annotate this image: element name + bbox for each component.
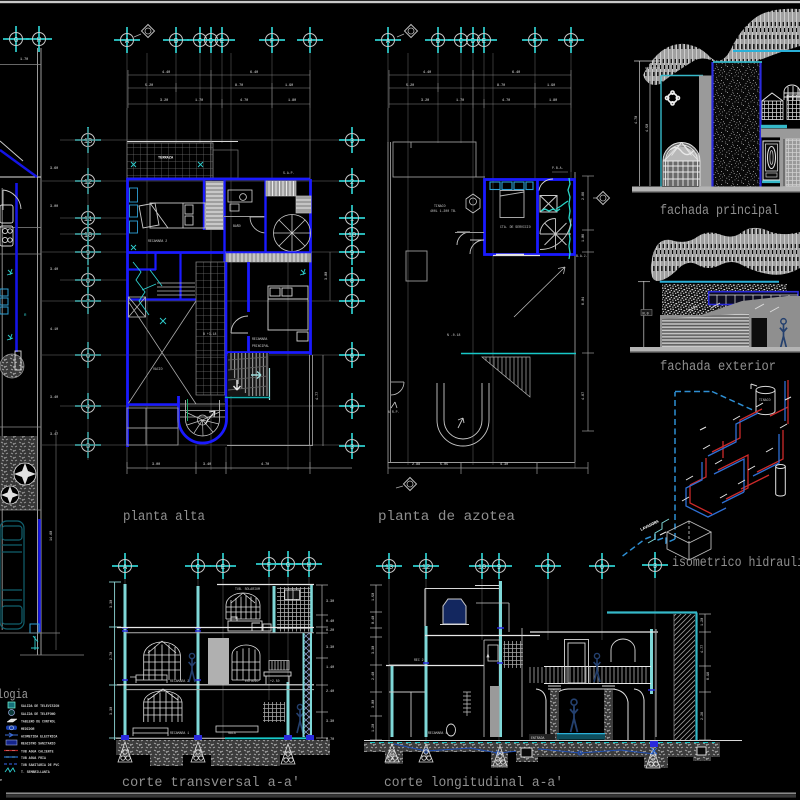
svg-text:10: 10 bbox=[478, 564, 486, 572]
svg-text:2.40: 2.40 bbox=[326, 690, 334, 694]
svg-text:4.70: 4.70 bbox=[502, 99, 510, 103]
svg-text:8.70: 8.70 bbox=[235, 84, 243, 88]
svg-text:1.80: 1.80 bbox=[549, 99, 557, 103]
svg-text:3.60: 3.60 bbox=[50, 167, 58, 171]
svg-text:1.70: 1.70 bbox=[195, 99, 203, 103]
svg-text:E: E bbox=[221, 564, 225, 572]
svg-text:3.00: 3.00 bbox=[325, 272, 329, 280]
svg-text:3.20: 3.20 bbox=[160, 99, 168, 103]
svg-text:fachada exterior: fachada exterior bbox=[660, 360, 776, 375]
svg-text:RECAMARA 1: RECAMARA 1 bbox=[170, 731, 189, 735]
svg-text:2.88: 2.88 bbox=[412, 463, 420, 467]
svg-text:8.04: 8.04 bbox=[582, 297, 586, 305]
svg-text:planta alta: planta alta bbox=[123, 510, 205, 525]
svg-text:9: 9 bbox=[350, 250, 354, 258]
svg-text:F: F bbox=[533, 38, 537, 46]
svg-text:5.20: 5.20 bbox=[145, 84, 153, 88]
svg-text:3.00: 3.00 bbox=[50, 205, 58, 209]
svg-text:SALIDA DE TELEFONO: SALIDA DE TELEFONO bbox=[21, 712, 56, 716]
svg-text:4.50: 4.50 bbox=[646, 124, 650, 132]
svg-text:E: E bbox=[220, 38, 224, 46]
svg-text:6: 6 bbox=[350, 353, 354, 361]
svg-text:TUB AGUA FRIA: TUB AGUA FRIA bbox=[21, 756, 46, 760]
svg-text:H: H bbox=[37, 37, 41, 45]
svg-text:4.70: 4.70 bbox=[261, 463, 269, 467]
svg-text:TINACO: TINACO bbox=[434, 204, 446, 208]
svg-text:RECAMARA: RECAMARA bbox=[252, 337, 267, 341]
svg-text:E: E bbox=[482, 38, 486, 46]
svg-text:4.77: 4.77 bbox=[701, 645, 705, 653]
svg-text:8: 8 bbox=[350, 278, 354, 286]
svg-text:RECAMARA 2: RECAMARA 2 bbox=[170, 679, 189, 683]
svg-text:3.30: 3.30 bbox=[110, 600, 114, 608]
svg-text:4.40: 4.40 bbox=[423, 71, 431, 75]
svg-text:5.20: 5.20 bbox=[406, 84, 414, 88]
svg-text:1.40: 1.40 bbox=[326, 666, 334, 670]
svg-text:H: H bbox=[569, 38, 573, 46]
svg-text:3.30: 3.30 bbox=[326, 646, 334, 650]
svg-text:TUB SANITARIA DE PVC: TUB SANITARIA DE PVC bbox=[21, 763, 59, 767]
svg-text:2.70: 2.70 bbox=[110, 652, 114, 660]
svg-text:3.40: 3.40 bbox=[203, 463, 211, 467]
svg-text:MEDIDOR: MEDIDOR bbox=[21, 727, 34, 731]
svg-text:3.47: 3.47 bbox=[50, 433, 58, 437]
svg-text:9: 9 bbox=[497, 564, 501, 572]
svg-text:3: 3 bbox=[653, 563, 657, 571]
svg-text:3.30: 3.30 bbox=[110, 707, 114, 715]
svg-text:3.30: 3.30 bbox=[326, 720, 334, 724]
svg-text:3.20: 3.20 bbox=[421, 99, 429, 103]
svg-text:8.98: 8.98 bbox=[707, 672, 711, 680]
svg-text:4.40: 4.40 bbox=[162, 71, 170, 75]
svg-text:N -0.18: N -0.18 bbox=[447, 333, 460, 337]
svg-text:ESTUDIO: ESTUDIO bbox=[245, 679, 258, 683]
svg-text:TINACO: TINACO bbox=[759, 398, 771, 402]
svg-text:TUB AGUA CALIENTE: TUB AGUA CALIENTE bbox=[21, 749, 54, 753]
svg-text:2.28: 2.28 bbox=[701, 712, 705, 720]
svg-text:1.70: 1.70 bbox=[456, 99, 464, 103]
svg-text:13: 13 bbox=[385, 564, 393, 572]
svg-text:BAÑO: BAÑO bbox=[233, 224, 241, 228]
svg-text:3: 3 bbox=[350, 444, 354, 452]
svg-text:14.60: 14.60 bbox=[50, 531, 54, 541]
svg-text:4.30: 4.30 bbox=[500, 463, 508, 467]
svg-text:400L 1.200 TB.: 400L 1.200 TB. bbox=[430, 209, 457, 213]
svg-text:5.05: 5.05 bbox=[440, 463, 448, 467]
svg-text:6.40: 6.40 bbox=[250, 71, 258, 75]
svg-text:B: B bbox=[174, 38, 178, 46]
svg-text:4.77: 4.77 bbox=[316, 392, 320, 400]
svg-text:0.40: 0.40 bbox=[326, 620, 334, 624]
svg-text:B +3.18: B +3.18 bbox=[203, 332, 216, 336]
svg-text:F: F bbox=[267, 562, 271, 570]
svg-text:3.30: 3.30 bbox=[372, 646, 376, 654]
svg-text:4.70: 4.70 bbox=[240, 99, 248, 103]
svg-text:1.70: 1.70 bbox=[20, 58, 28, 62]
svg-text:RECAMARA 1: RECAMARA 1 bbox=[428, 731, 447, 735]
svg-text:TUB. SOLARIUM: TUB. SOLARIUM bbox=[235, 587, 260, 591]
svg-text:4.10: 4.10 bbox=[50, 328, 58, 332]
svg-text:12: 12 bbox=[422, 564, 430, 572]
svg-text:N.0: N.0 bbox=[643, 312, 649, 316]
svg-text:planta de azotea: planta de azotea bbox=[378, 510, 515, 525]
svg-text:7: 7 bbox=[546, 564, 550, 572]
svg-text:3.40: 3.40 bbox=[50, 396, 58, 400]
svg-text:A R.P.: A R.P. bbox=[388, 410, 400, 414]
svg-text:TERRAZA: TERRAZA bbox=[158, 157, 174, 161]
svg-text:S.A.P.: S.A.P. bbox=[283, 171, 295, 175]
svg-text:TABLERO DE CONTROL: TABLERO DE CONTROL bbox=[21, 720, 56, 724]
svg-text:1.20: 1.20 bbox=[701, 618, 705, 626]
svg-text:3.00: 3.00 bbox=[152, 463, 160, 467]
svg-text:4.70: 4.70 bbox=[635, 116, 639, 124]
svg-text:VACIO: VACIO bbox=[153, 367, 163, 371]
svg-text:logia: logia bbox=[0, 687, 28, 702]
svg-text:3.30: 3.30 bbox=[326, 600, 334, 604]
svg-text:4.87: 4.87 bbox=[582, 392, 586, 400]
svg-text:2: 2 bbox=[350, 179, 354, 187]
svg-text:CTA. DE SERVICIO: CTA. DE SERVICIO bbox=[500, 225, 531, 229]
svg-text:0.20: 0.20 bbox=[326, 629, 334, 633]
svg-text:6.40: 6.40 bbox=[512, 71, 520, 75]
svg-text:7: 7 bbox=[350, 299, 354, 307]
svg-text:SALIDA DE TELEVISION: SALIDA DE TELEVISION bbox=[21, 704, 59, 708]
svg-text:1.90: 1.90 bbox=[285, 84, 293, 88]
svg-text:ENTRADA: ENTRADA bbox=[531, 736, 544, 740]
svg-text:1.50: 1.50 bbox=[372, 593, 376, 601]
svg-text:fachada principal: fachada principal bbox=[660, 204, 779, 219]
svg-text:6: 6 bbox=[600, 564, 604, 572]
svg-text:ACOMETIDA ELECTRICA: ACOMETIDA ELECTRICA bbox=[21, 734, 57, 738]
svg-text:RECAMARA 2: RECAMARA 2 bbox=[148, 239, 167, 243]
svg-text:4: 4 bbox=[350, 404, 354, 412]
svg-text:1.90: 1.90 bbox=[547, 84, 555, 88]
svg-text:G: G bbox=[14, 37, 18, 45]
svg-text:0.70: 0.70 bbox=[326, 738, 334, 742]
svg-text:SALA: SALA bbox=[228, 731, 236, 735]
svg-text:P.B.A.: P.B.A. bbox=[552, 166, 564, 170]
svg-text:3.40: 3.40 bbox=[50, 268, 58, 272]
svg-text:A: A bbox=[487, 654, 489, 658]
svg-text:H: H bbox=[307, 562, 311, 570]
svg-text:G: G bbox=[286, 562, 290, 570]
svg-text:C: C bbox=[196, 564, 200, 572]
svg-text:isometrico hidraulico: isometrico hidraulico bbox=[672, 556, 800, 571]
svg-text:T. SEMBRILLANTA: T. SEMBRILLANTA bbox=[21, 770, 50, 774]
svg-text:PRINCIPAL: PRINCIPAL bbox=[252, 344, 269, 348]
svg-text:H: H bbox=[308, 38, 312, 46]
svg-text:B: B bbox=[436, 38, 440, 46]
svg-text:F: F bbox=[270, 38, 274, 46]
svg-text:10: 10 bbox=[348, 232, 356, 240]
svg-text:REC 2: REC 2 bbox=[414, 658, 424, 662]
svg-text:1.20: 1.20 bbox=[372, 724, 376, 732]
svg-text:+2.50: +2.50 bbox=[270, 679, 280, 683]
svg-text:REGISTRO SANITARIO: REGISTRO SANITARIO bbox=[21, 742, 56, 746]
svg-text:1.08: 1.08 bbox=[582, 234, 586, 242]
svg-text:B.A.J.: B.A.J. bbox=[576, 254, 588, 258]
svg-text:corte longitudinal a-a': corte longitudinal a-a' bbox=[384, 776, 563, 791]
svg-text:3.00: 3.00 bbox=[372, 700, 376, 708]
svg-text:corte transversal a-a': corte transversal a-a' bbox=[122, 776, 300, 791]
svg-text:3: 3 bbox=[350, 138, 354, 146]
svg-text:2.40: 2.40 bbox=[372, 672, 376, 680]
svg-text:2.88: 2.88 bbox=[582, 192, 586, 200]
svg-text:e: e bbox=[0, 779, 2, 783]
svg-text:1.80: 1.80 bbox=[288, 99, 296, 103]
svg-text:0.40: 0.40 bbox=[372, 616, 376, 624]
svg-text:8.70: 8.70 bbox=[497, 84, 505, 88]
